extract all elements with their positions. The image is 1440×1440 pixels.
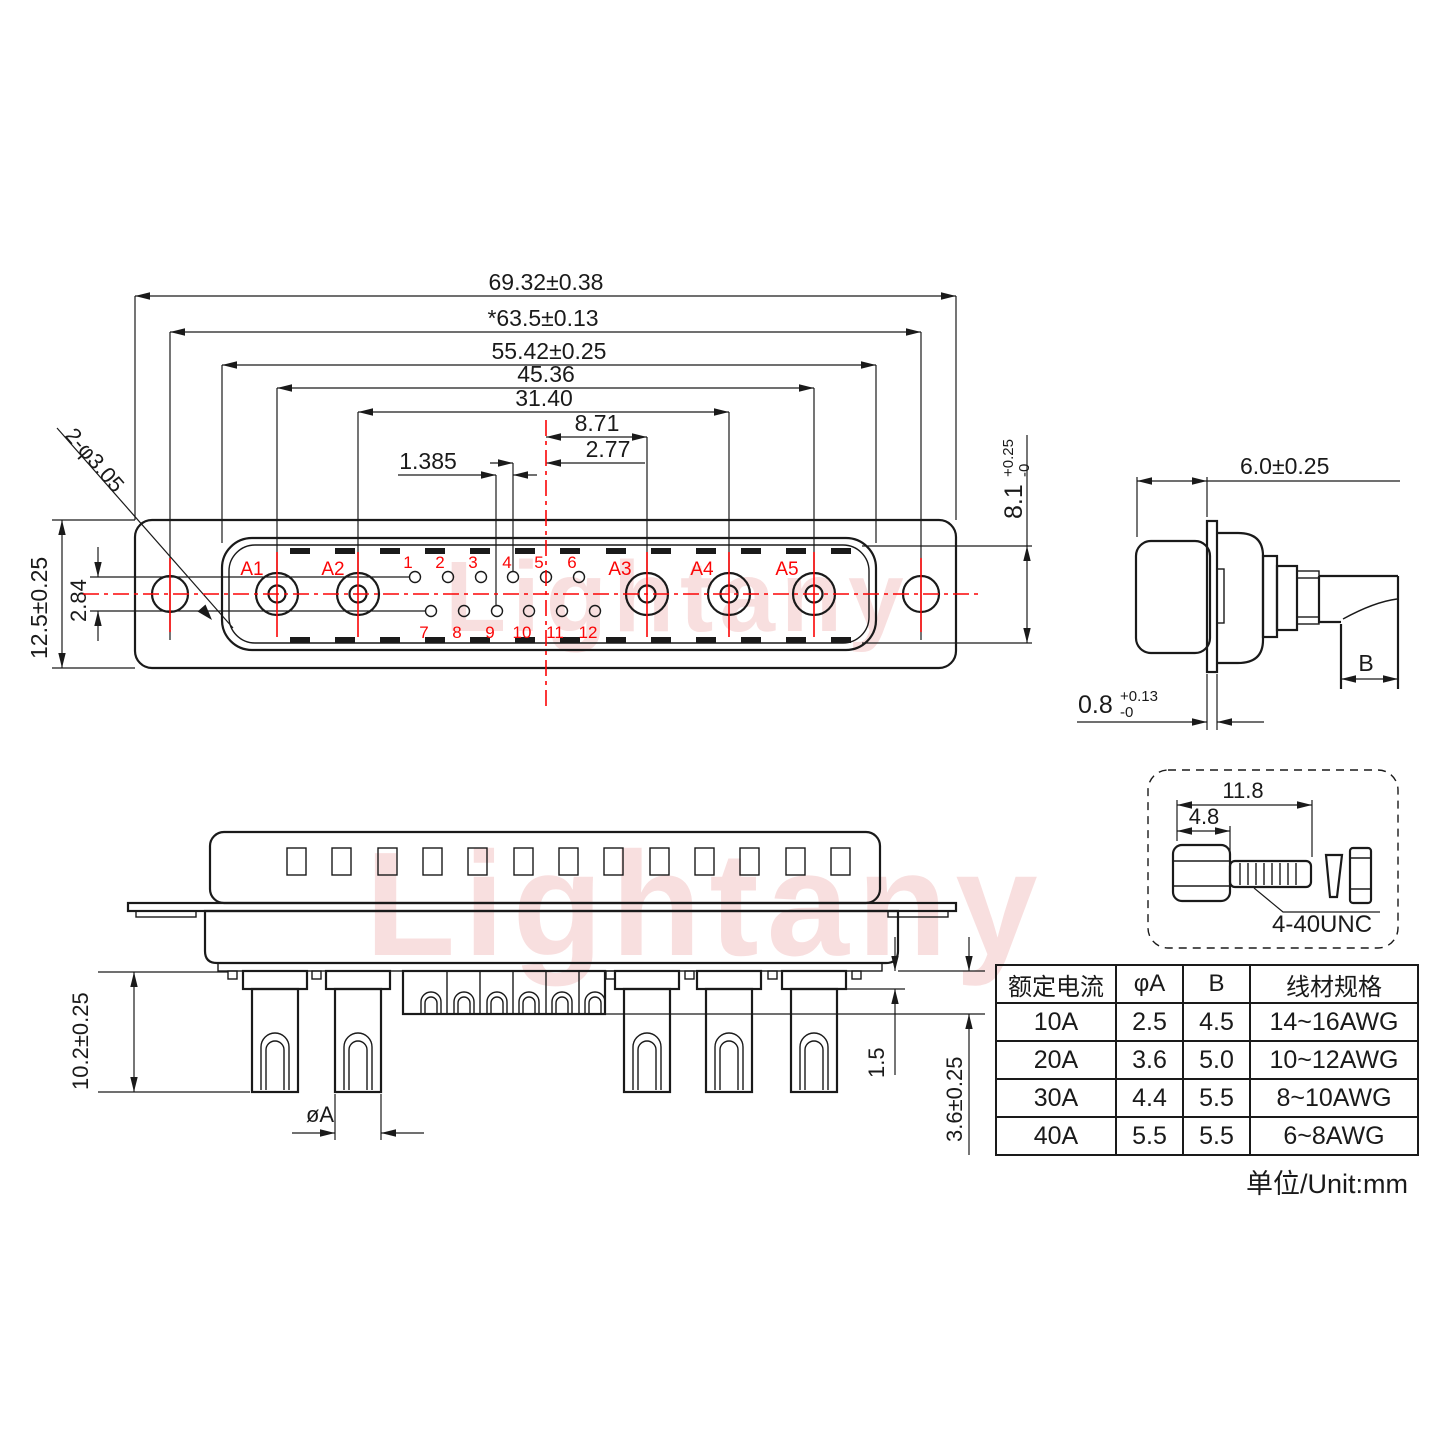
pin-label-2: 2 [435,553,444,572]
table-row: 30A 4.4 5.5 8~10AWG [996,1079,1418,1117]
side-pin-top [1297,571,1319,578]
side-front-body [1136,541,1210,653]
dim-row-spacing: 2.84 [66,579,91,622]
table-row: 40A 5.5 5.5 6~8AWG [996,1117,1418,1155]
table-row: 10A 2.5 4.5 14~16AWG [996,1003,1418,1041]
pin-label-6: 6 [567,553,576,572]
cell-b-40a: 5.5 [1183,1117,1250,1155]
thread-spec-label: 4-40UNC [1272,911,1372,938]
pin-label-9: 9 [485,623,494,642]
pin-label-8: 8 [452,623,461,642]
dim-flange-height: 12.5±0.25 [26,557,52,659]
dim-pitch: 2.77 [586,436,631,462]
taper-pin [1326,855,1342,897]
col-header-rated-current: 额定电流 [996,965,1116,1003]
table-header-row: 额定电流 φA B 线材规格 [996,965,1418,1003]
spacer-cylinder [1350,848,1371,903]
dim-mounting-span: *63.5±0.13 [487,305,598,331]
screw-head [1173,845,1230,901]
pin-label-a3: A3 [608,559,631,580]
dim-flange-tol-minus: -0 [1120,704,1133,721]
dim-opening-height: 8.1 [1000,484,1028,519]
pin-label-10: 10 [513,623,532,642]
cell-dia-20a: 3.6 [1116,1041,1183,1079]
left-dimensions: 12.5±0.25 2.84 2-φ3.05 [26,423,233,668]
cell-wire-10a: 14~16AWG [1250,1003,1418,1041]
col-header-phi-a: φA [1116,965,1183,1003]
front-view: A1 A2 A3 A4 A5 1 2 3 4 5 6 7 8 9 10 11 1… [26,269,1032,706]
side-flange-plate [1207,521,1217,672]
pin-label-a4: A4 [690,559,714,580]
dim-half-pitch: 1.385 [399,448,457,474]
dim-flange-thickness: 0.8 [1078,691,1113,719]
cell-dia-10a: 2.5 [1116,1003,1183,1041]
pin-label-3: 3 [468,553,477,572]
bottom-dimensions: 10.2±0.25 øA 1.5 3.6±0.25 [68,937,985,1155]
dim-a2-a4: 31.40 [515,385,573,411]
side-insulator-step1 [1263,556,1277,637]
power-pin-tails [243,971,846,1092]
side-pin-bottom [1297,617,1319,624]
cell-b-20a: 5.0 [1183,1041,1250,1079]
pin-label-12: 12 [579,623,598,642]
side-view: 6.0±0.25 8.1 +0.25 -0 0.8 +0.13 -0 [1000,435,1400,730]
dim-center-a3: 8.71 [575,410,620,436]
technical-drawing: A1 A2 A3 A4 A5 1 2 3 4 5 6 7 8 9 10 11 1… [0,0,1440,1440]
cell-dia-40a: 5.5 [1116,1117,1183,1155]
back-shell [210,832,880,903]
spec-table: 额定电流 φA B 线材规格 10A 2.5 4.5 14~16AWG 20A … [995,964,1419,1156]
dim-opening-height-group: 8.1 +0.25 -0 [1000,439,1033,519]
unit-note: 单位/Unit:mm [1158,1162,1408,1201]
dim-opening-tol-plus: +0.25 [1000,439,1017,477]
pin-label-4: 4 [502,553,511,572]
cell-dia-30a: 4.4 [1116,1079,1183,1117]
table-row: 20A 3.6 5.0 10~12AWG [996,1041,1418,1079]
dim-overall-width: 69.32±0.38 [489,269,604,295]
cell-wire-40a: 6~8AWG [1250,1117,1418,1155]
col-header-wire-gauge: 线材规格 [1250,965,1418,1003]
centerlines [83,420,983,706]
dim-screw-head: 4.8 [1189,804,1220,829]
cell-wire-20a: 10~12AWG [1250,1041,1418,1079]
pin-label-7: 7 [419,623,428,642]
dim-insert-depth: 3.6±0.25 [942,1057,967,1142]
cell-current-20a: 20A [996,1041,1116,1079]
cell-current-10a: 10A [996,1003,1116,1041]
pin-label-a5: A5 [775,559,798,580]
drawing-canvas: Lightany Lightany [0,0,1440,1440]
dim-wire-label: B [1358,650,1373,676]
side-wire-bend [1343,599,1397,619]
cell-b-30a: 5.5 [1183,1079,1250,1117]
lower-body [205,911,898,963]
cell-wire-30a: 8~10AWG [1250,1079,1418,1117]
insert-layer [218,963,882,971]
side-insulator-step2 [1277,566,1297,630]
thread-ribs [1240,863,1296,885]
dim-front-depth: 6.0±0.25 [1240,453,1329,479]
pin-label-11: 11 [546,623,564,642]
back-shell-slots [287,848,850,875]
cell-current-40a: 40A [996,1117,1116,1155]
pin-label-1: 1 [403,553,412,572]
signal-pin-block [403,971,605,1014]
dim-pin-length: 10.2±0.25 [68,992,93,1090]
col-header-b: B [1183,965,1250,1003]
dim-shoulder: 1.5 [864,1047,889,1078]
dim-a1-a5: 45.36 [517,361,575,387]
pin-label-5: 5 [534,553,543,572]
cell-current-30a: 30A [996,1079,1116,1117]
cell-b-10a: 4.5 [1183,1003,1250,1041]
dim-pin-dia: øA [306,1102,334,1127]
screw-detail: 11.8 4.8 4-40UNC [1148,770,1398,948]
dim-opening-tol-minus: -0 [1016,464,1033,477]
leader-arrowhead [198,605,213,621]
bottom-view: 10.2±0.25 øA 1.5 3.6±0.25 [68,832,985,1155]
screw-thread-shaft [1230,861,1311,887]
insert-nubs [228,971,861,979]
dim-screw-length: 11.8 [1222,778,1263,803]
signal-pin-labels: 1 2 3 4 5 6 7 8 9 10 11 12 [403,553,597,642]
bottom-flange [128,903,956,911]
dim-flange-tol-plus: +0.13 [1120,688,1158,705]
dim-mounting-hole-dia: 2-φ3.05 [60,423,129,497]
